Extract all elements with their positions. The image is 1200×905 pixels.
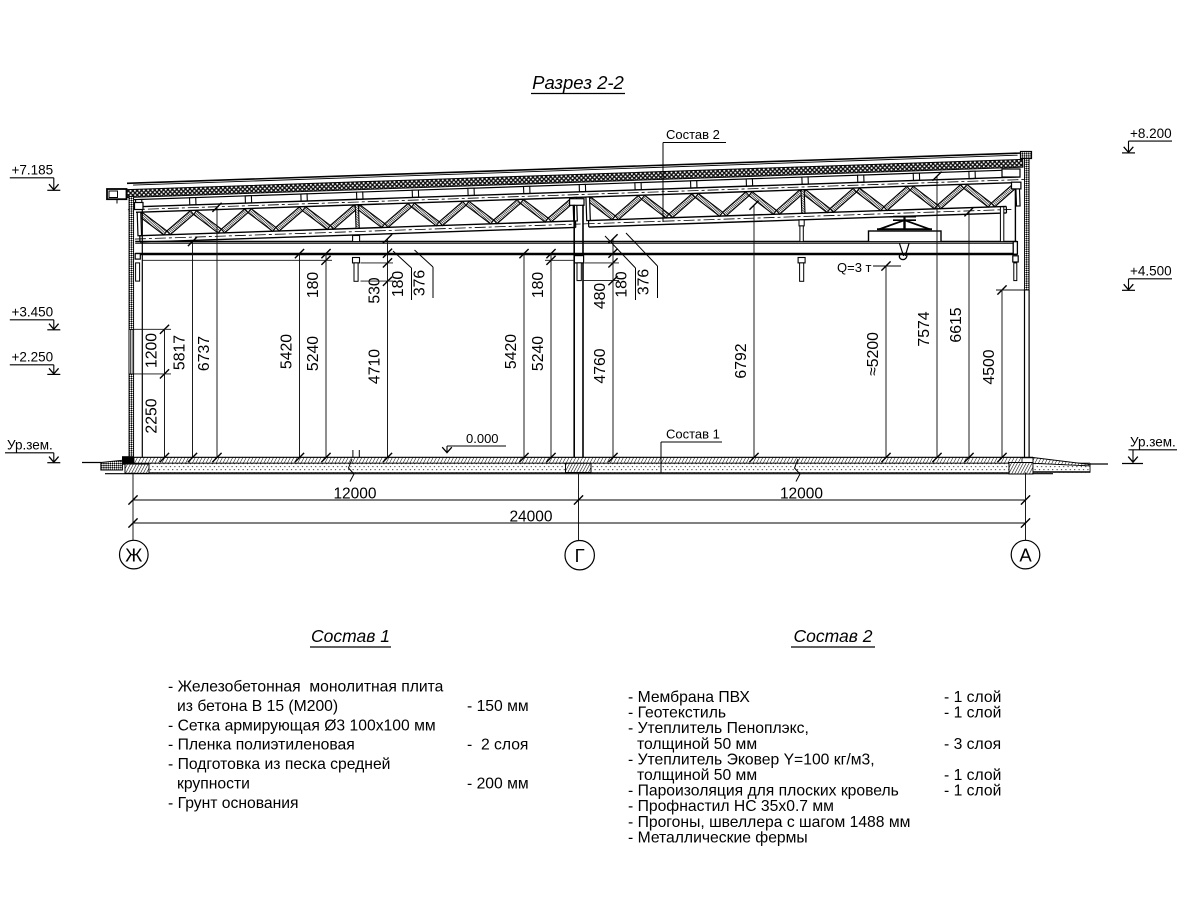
svg-text:Ур.зем.: Ур.зем. (1130, 435, 1176, 450)
svg-text:0.000: 0.000 (466, 431, 499, 446)
svg-text:4500: 4500 (981, 349, 998, 384)
svg-text:- 2 слоя: - 2 слоя (467, 737, 528, 754)
svg-text:7574: 7574 (916, 311, 933, 346)
svg-text:из бетона В 15 (М200): из бетона В 15 (М200) (177, 698, 338, 715)
svg-text:- Грунт основания: - Грунт основания (168, 795, 299, 812)
svg-text:+4.500: +4.500 (1130, 264, 1172, 279)
svg-text:Г: Г (575, 545, 585, 566)
svg-text:Состав 1: Состав 1 (666, 427, 720, 442)
svg-text:- 150 мм: - 150 мм (467, 698, 529, 715)
svg-text:- 1 слой: - 1 слой (944, 705, 1001, 722)
svg-text:- Подготовка из песка средней: - Подготовка из песка средней (168, 756, 390, 773)
svg-text:- 3 слоя: - 3 слоя (944, 736, 1001, 753)
svg-text:Состав 2: Состав 2 (794, 626, 873, 646)
svg-text:А: А (1019, 544, 1032, 565)
svg-text:толщиной 50 мм: толщиной 50 мм (637, 736, 757, 753)
svg-text:Разрез 2-2: Разрез 2-2 (532, 72, 624, 93)
svg-text:5817: 5817 (172, 335, 189, 370)
svg-text:толщиной 50 мм: толщиной 50 мм (637, 767, 757, 784)
svg-text:12000: 12000 (333, 486, 376, 503)
svg-text:5420: 5420 (279, 334, 296, 369)
svg-text:- Мембрана ПВХ: - Мембрана ПВХ (628, 689, 750, 706)
svg-text:Q=3 т: Q=3 т (837, 260, 872, 275)
svg-text:- Пленка полиэтиленовая: - Пленка полиэтиленовая (168, 737, 355, 754)
svg-text:- 1 слой: - 1 слой (944, 689, 1001, 706)
svg-text:376: 376 (412, 270, 429, 297)
svg-text:Состав 1: Состав 1 (311, 626, 390, 646)
svg-text:5240: 5240 (305, 336, 322, 371)
svg-text:+7.185: +7.185 (12, 163, 54, 178)
svg-text:- Утеплитель Пеноплэкс,: - Утеплитель Пеноплэкс, (628, 720, 809, 737)
svg-text:4760: 4760 (592, 348, 609, 383)
svg-text:- 1 слой: - 1 слой (944, 783, 1001, 800)
svg-text:24000: 24000 (509, 509, 552, 526)
svg-text:2250: 2250 (144, 398, 161, 433)
svg-text:крупности: крупности (177, 776, 250, 793)
svg-text:480: 480 (592, 283, 609, 310)
svg-text:- Металлические фермы: - Металлические фермы (628, 829, 808, 846)
svg-text:- Железобетонная монолитная п: - Железобетонная монолитная плита (168, 679, 444, 696)
svg-text:Ур.зем.: Ур.зем. (7, 438, 53, 453)
svg-text:12000: 12000 (780, 486, 823, 503)
svg-text:Состав 2: Состав 2 (666, 127, 720, 142)
svg-text:180: 180 (390, 271, 407, 298)
svg-text:+8.200: +8.200 (1130, 126, 1172, 141)
svg-text:5240: 5240 (530, 336, 547, 371)
svg-text:180: 180 (614, 271, 631, 298)
svg-text:- Пароизоляция для плоских кро: - Пароизоляция для плоских кровель (628, 783, 899, 800)
svg-text:- Прогоны, швеллера с шагом 14: - Прогоны, швеллера с шагом 1488 мм (628, 814, 910, 831)
svg-text:6792: 6792 (733, 343, 750, 378)
svg-text:+3.450: +3.450 (12, 305, 54, 320)
svg-text:≈5200: ≈5200 (865, 332, 882, 376)
svg-text:Ж: Ж (125, 544, 142, 565)
svg-text:- Геотекстиль: - Геотекстиль (628, 705, 726, 722)
svg-text:- Сетка армирующая Ø3 100х100: - Сетка армирующая Ø3 100х100 мм (168, 717, 436, 734)
svg-text:180: 180 (530, 272, 547, 299)
svg-text:6615: 6615 (948, 307, 965, 342)
svg-text:- 1 слой: - 1 слой (944, 767, 1001, 784)
svg-text:180: 180 (305, 272, 322, 299)
svg-text:5420: 5420 (503, 334, 520, 369)
svg-text:4710: 4710 (367, 349, 384, 384)
svg-text:- Утеплитель Эковер Y=100 кг/м: - Утеплитель Эковер Y=100 кг/м3, (628, 751, 875, 768)
svg-text:- 200 мм: - 200 мм (467, 776, 529, 793)
svg-text:6737: 6737 (196, 336, 213, 371)
svg-text:- Профнастил НС 35х0.7 мм: - Профнастил НС 35х0.7 мм (628, 798, 834, 815)
svg-text:1200: 1200 (144, 333, 161, 368)
svg-text:+2.250: +2.250 (12, 350, 54, 365)
svg-text:376: 376 (636, 269, 653, 296)
